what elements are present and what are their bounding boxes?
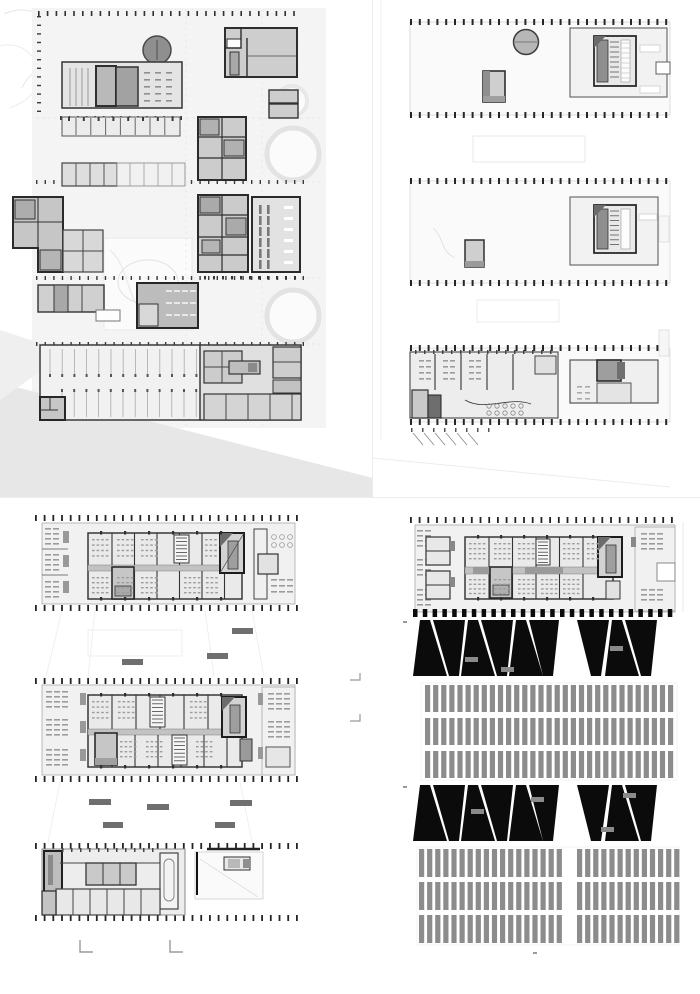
panel-gutter-horizontal: [0, 497, 700, 498]
panel-typical-level-plans: [0, 497, 373, 994]
parking-stall-row: [577, 849, 679, 877]
parking-stall-row: [577, 915, 679, 943]
section-mark: [350, 673, 360, 680]
parking-stall-row: [419, 882, 562, 910]
column-grid-row: [35, 515, 298, 521]
panel-gutter-vertical: [372, 0, 373, 497]
skylight-wedges: [413, 785, 657, 841]
architectural-plan-sheet: [0, 0, 700, 994]
roof-bar: [103, 822, 123, 828]
parking-stall-row: [425, 751, 673, 778]
parking-stall-row: [425, 685, 673, 712]
parking-stall-row: [419, 915, 562, 943]
corner-mark: [170, 940, 183, 952]
roof-bar: [230, 800, 252, 806]
column-grid-row: [410, 517, 673, 523]
panel-roof-plan-parking: [373, 497, 700, 994]
corner-mark: [80, 940, 93, 952]
parking-stall-row: [419, 849, 562, 877]
section-mark: [350, 714, 360, 721]
car-symbol: [96, 310, 120, 321]
panel-upper-floor-plan: [373, 0, 700, 497]
roof-bar: [207, 653, 228, 659]
panel-ground-floor-site-plan: [0, 0, 373, 497]
roof-bar: [122, 659, 143, 665]
parking-stall-row: [577, 882, 679, 910]
roof-bar: [232, 628, 253, 634]
roof-bar: [89, 799, 111, 805]
parking-stall-row: [425, 718, 673, 745]
roof-bar: [215, 822, 235, 828]
roof-bar: [147, 804, 169, 810]
